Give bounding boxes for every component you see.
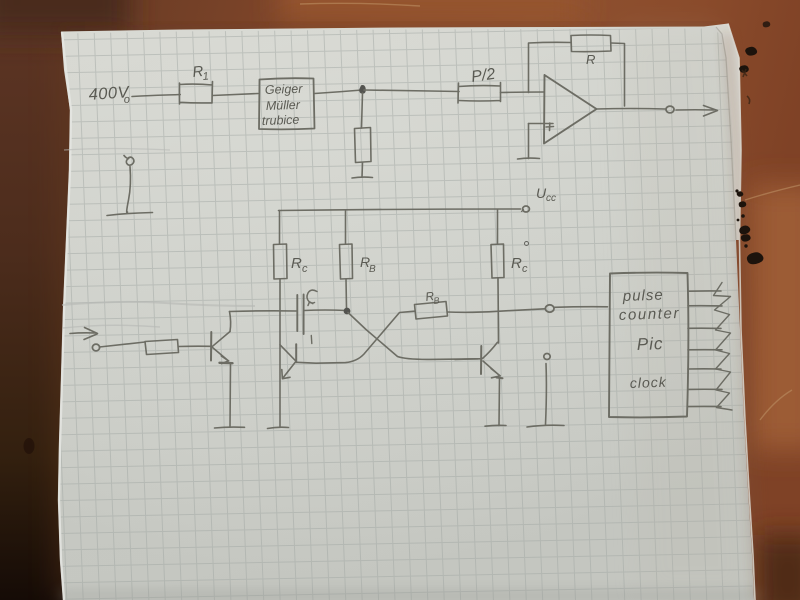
svg-text:R: R: [586, 52, 595, 67]
svg-text:R: R: [511, 255, 522, 272]
svg-text:Geiger: Geiger: [265, 82, 304, 97]
svg-text:R: R: [291, 255, 302, 272]
svg-text:c: c: [522, 263, 528, 275]
svg-text:P/2: P/2: [470, 66, 496, 86]
svg-text:c: c: [302, 263, 308, 275]
svg-text:Müller: Müller: [266, 98, 301, 113]
svg-text:1: 1: [202, 70, 209, 83]
svg-text:o: o: [123, 94, 130, 106]
svg-text:counter: counter: [619, 305, 681, 324]
svg-text:pulse: pulse: [622, 287, 664, 305]
svg-text:Pic: Pic: [636, 334, 663, 354]
svg-text:trubice: trubice: [262, 113, 300, 128]
svg-text:clock: clock: [630, 374, 667, 391]
svg-text:cc: cc: [546, 193, 556, 204]
svg-text:B: B: [369, 264, 376, 275]
